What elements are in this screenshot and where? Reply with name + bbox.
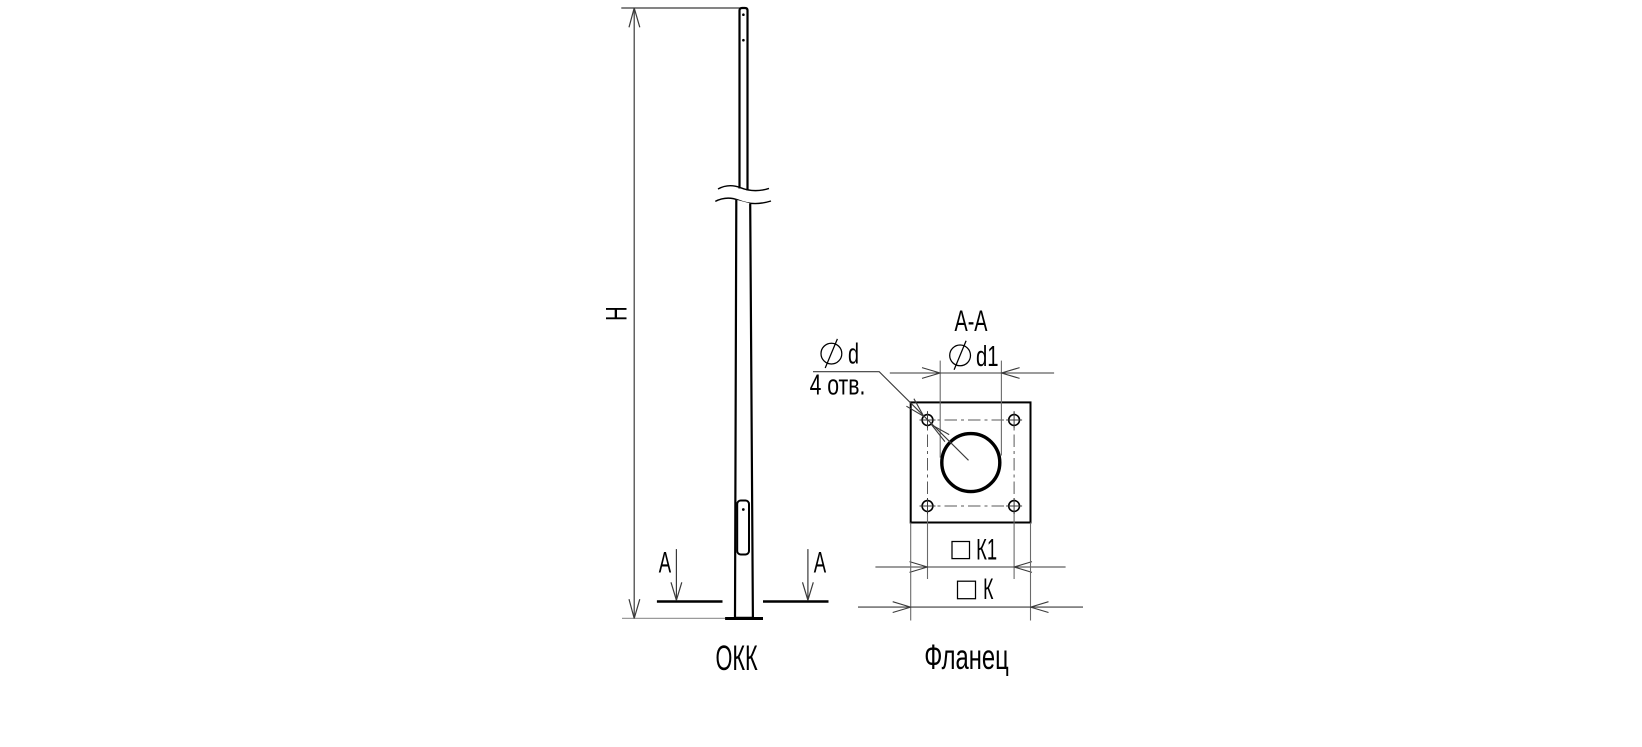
svg-text:ОКК: ОКК <box>716 638 758 678</box>
svg-text:Фланец: Фланец <box>924 638 1008 677</box>
svg-text:4 отв.: 4 отв. <box>810 370 866 402</box>
svg-text:A: A <box>659 547 672 580</box>
svg-text:A: A <box>814 547 827 580</box>
svg-text:К1: К1 <box>976 534 997 567</box>
svg-text:d: d <box>848 339 859 371</box>
svg-text:d1: d1 <box>976 341 999 373</box>
svg-text:К: К <box>983 573 994 606</box>
svg-text:H: H <box>601 306 634 321</box>
svg-text:A-A: A-A <box>955 305 988 338</box>
